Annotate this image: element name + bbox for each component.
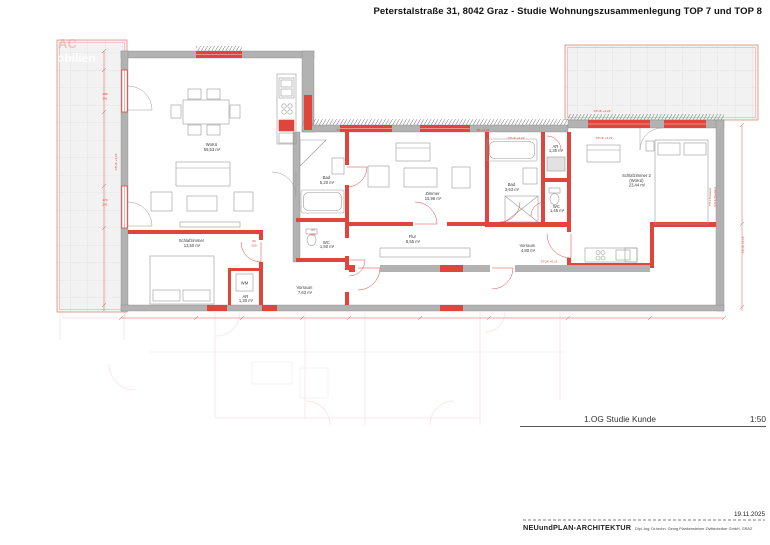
window-dim: 241 xyxy=(102,97,107,101)
level-note: STUK +4,22 xyxy=(337,128,354,132)
micro-text-line xyxy=(523,519,765,521)
level-note: STUK +4,22 xyxy=(424,128,441,132)
watermark-line1: AC xyxy=(58,36,77,51)
window-dim: 170 xyxy=(102,198,107,202)
firm-name: NEUundPLAN-ARCHITEKTUR xyxy=(523,523,631,532)
stair-note: STLK Bestand xyxy=(713,187,717,207)
room-label-vorraum2: Vorraum 4,80 m² xyxy=(520,243,537,253)
terrace-left xyxy=(57,40,127,312)
washing-machine-label: WM xyxy=(241,281,249,286)
level-note: STUK +0,11 xyxy=(541,260,558,264)
stair-note: TH4 Bestand xyxy=(708,188,712,206)
footer: 19.11.2025 NEUundPLAN-ARCHITEKTUR Dipl.-… xyxy=(523,511,765,532)
drawing-scale: 1:50 xyxy=(720,414,766,424)
door-dim: 200 xyxy=(251,244,256,248)
door-dim: 200 xyxy=(310,233,315,237)
level-note: STUK +4,22 xyxy=(594,109,611,113)
drawing-title: 1.OG Studie Kunde xyxy=(520,414,720,424)
level-note: STUK +4,22 xyxy=(508,136,525,140)
level-note: STUK +4,22 xyxy=(114,153,118,170)
drawing-sheet: Peterstalstraße 31, 8042 Graz - Studie W… xyxy=(0,0,770,545)
window-dim: 288 xyxy=(102,92,107,96)
watermark-line2: obilien xyxy=(57,51,96,65)
title-block: 1.OG Studie Kunde 1:50 xyxy=(520,414,766,427)
lower-floor-ghost xyxy=(60,312,565,425)
door-dim: 80 xyxy=(252,239,256,243)
drawing-date: 19.11.2025 xyxy=(523,511,765,518)
room-label-vorraum1: Vorraum 7,63 m² xyxy=(297,285,314,295)
level-note: STUK +4,22 xyxy=(596,136,613,140)
window-dim: 241 xyxy=(102,203,107,207)
level-note: STUK +4,22 xyxy=(741,236,745,253)
floor-plan-canvas: AC obilien xyxy=(0,0,770,545)
level-note: BK +4,22 xyxy=(477,128,490,132)
room-label-zimmer: Zimmer 15,96 m² xyxy=(425,191,442,201)
firm-detail: Dipl.-Ing. Dr.techn. Georg Plankensteine… xyxy=(635,527,752,531)
door-dim: 80 xyxy=(311,228,315,232)
